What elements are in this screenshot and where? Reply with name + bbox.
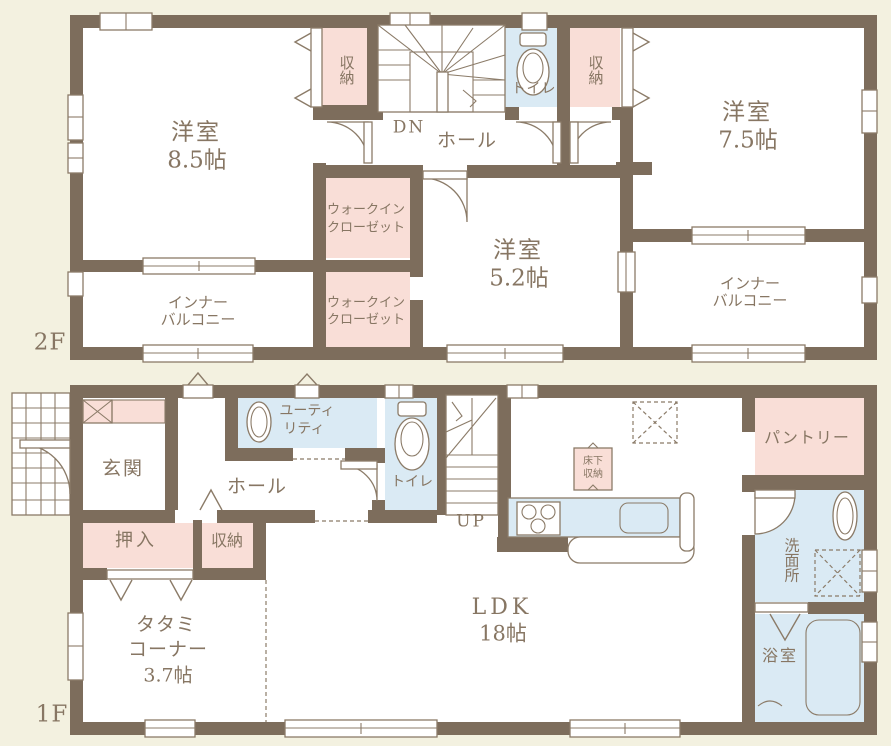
wic-1-label-2: クローゼット xyxy=(327,222,405,235)
utility-label-2: リティ xyxy=(283,422,324,436)
stairs-up-label: UP xyxy=(456,514,486,531)
stairs-2f xyxy=(378,25,505,112)
floor-storage-label-2: 収納 xyxy=(583,470,603,480)
floorplan: 洋室 8.5帖 収納 トイレ 収納 DN ホール 洋室 7.5帖 ウォークイン … xyxy=(0,0,891,746)
shoe-cabinet-area xyxy=(112,400,165,423)
toilet-icon-1f xyxy=(395,402,429,470)
hall-1f-label: ホール xyxy=(227,478,287,497)
balcony-left-label-1: インナー xyxy=(168,296,228,311)
washroom-label: 洗面所 xyxy=(784,538,799,583)
room-7-5-size: 7.5帖 xyxy=(718,130,778,153)
oshiire-label: 押入 xyxy=(115,532,157,550)
floor-1f-label: 1F xyxy=(36,704,69,727)
room-7-5-label: 洋室 xyxy=(722,102,772,125)
wic-1-label-1: ウォークイン xyxy=(327,204,405,217)
floor-1f xyxy=(12,373,877,737)
wic-1-area xyxy=(326,178,410,258)
bath-area xyxy=(755,614,864,722)
toilet-2f-label: トイレ xyxy=(512,82,557,96)
floor-storage-label-1: 床下 xyxy=(583,457,603,467)
utility-sink-icon xyxy=(247,402,271,442)
balcony-left-label-2: バルコニー xyxy=(161,313,236,328)
washroom-sink-icon xyxy=(833,492,857,540)
closet-1f-label: 収納 xyxy=(211,533,243,549)
closet-2-label: 収納 xyxy=(588,55,603,85)
stairs-1f xyxy=(446,395,498,515)
hall-2f-label: ホール xyxy=(437,132,497,151)
stairs-dn-label: DN xyxy=(393,120,426,137)
room-8-5-label: 洋室 xyxy=(171,122,221,145)
bath-label: 浴室 xyxy=(762,648,798,664)
wic-2-label-2: クローゼット xyxy=(327,314,405,327)
room-8-5-size: 8.5帖 xyxy=(167,150,227,173)
wic-2-label-1: ウォークイン xyxy=(327,297,405,310)
tatami-label-1: タタミ xyxy=(136,616,196,635)
utility-label-1: ユーティ xyxy=(279,404,334,418)
toilet-1f-label: トイレ xyxy=(391,475,433,489)
room-5-2-label: 洋室 xyxy=(493,240,543,263)
floor-2f-label: 2F xyxy=(34,332,67,355)
ldk-label: LDK xyxy=(472,597,533,619)
tatami-label-3: 3.7帖 xyxy=(143,667,192,686)
balcony-right-label-2: バルコニー xyxy=(713,294,788,309)
room-5-2-size: 5.2帖 xyxy=(489,268,549,291)
pantry-label: パントリー xyxy=(764,430,850,446)
entrance-label: 玄関 xyxy=(102,460,144,479)
tatami-label-2: コーナー xyxy=(128,641,208,660)
closet-1-label: 収納 xyxy=(339,55,354,85)
ldk-size: 18帖 xyxy=(479,624,527,645)
balcony-right-label-1: インナー xyxy=(720,277,780,292)
